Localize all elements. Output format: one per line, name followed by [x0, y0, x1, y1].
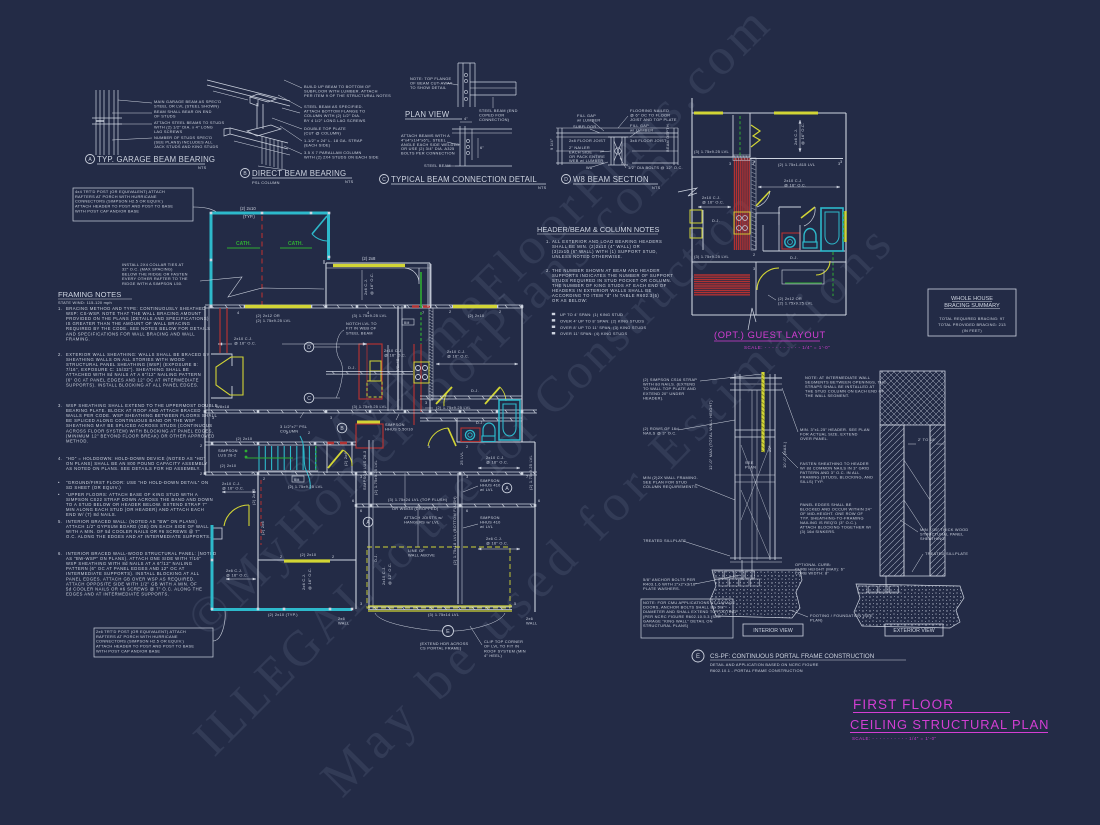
svg-text:W8: W8	[586, 165, 592, 170]
svg-text:(3) 1.75x14 LVL: (3) 1.75x14 LVL	[428, 612, 460, 617]
svg-text:@ 16" O.C.: @ 16" O.C.	[307, 568, 312, 590]
svg-text:INTERIOR BRACED WALL-WOOD STRU: INTERIOR BRACED WALL-WOOD STRUCTURAL PAN…	[66, 551, 218, 596]
svg-text:D.J.: D.J.	[712, 218, 720, 223]
svg-text:•: •	[58, 492, 60, 497]
svg-text:SCALE: - - - - - - - - - - 1/4: SCALE: - - - - - - - - - - 1/4" = 1'-0"	[744, 345, 830, 350]
svg-text:OR W6x34 (DROPPED): OR W6x34 (DROPPED)	[392, 506, 439, 511]
svg-text:D: D	[564, 177, 568, 183]
svg-text:2x10 C.J. @ 16" O.C.: 2x10 C.J. @ 16" O.C.	[222, 481, 244, 491]
svg-text:6: 6	[360, 508, 362, 513]
svg-text:D.J.: D.J.	[373, 554, 378, 562]
svg-text:DOUBLE TOP PLATE (CUT @ COLUMN: DOUBLE TOP PLATE (CUT @ COLUMN)	[304, 126, 347, 136]
svg-text:1/2" DIA BOLTS @ 12" O.C.: 1/2" DIA BOLTS @ 12" O.C.	[628, 165, 683, 170]
svg-text:2: 2	[263, 476, 265, 481]
svg-text:D: D	[307, 345, 311, 351]
svg-text:DETAIL AND APPLICATION BASED O: DETAIL AND APPLICATION BASED ON NCRC FIG…	[710, 662, 819, 667]
svg-text:TOTAL PROVIDED BRACING: 213: TOTAL PROVIDED BRACING: 213	[938, 322, 1006, 327]
svg-text:3x8 FLOOR JOIST: 3x8 FLOOR JOIST	[630, 138, 667, 143]
svg-text:3: 3	[729, 161, 731, 166]
svg-text:(2) 1.75x1.815 LVL: (2) 1.75x1.815 LVL	[778, 162, 816, 167]
svg-text:(2) 1.75x9.25 LVL: (2) 1.75x9.25 LVL	[436, 405, 471, 410]
svg-text:2: 2	[466, 444, 468, 449]
svg-text:"HD" = HOLDDOWN: HOLD-DOWN DEV: "HD" = HOLDDOWN: HOLD-DOWN DEVICE (NOTED…	[66, 456, 209, 471]
svg-text:(2) 2x10 (TYP.): (2) 2x10 (TYP.)	[268, 612, 298, 617]
svg-text:C: C	[382, 177, 386, 183]
svg-text:FLOORING NAILED @ 6" OC TO FLO: FLOORING NAILED @ 6" OC TO FLOOR JOIST A…	[630, 108, 677, 122]
svg-text:•: •	[58, 480, 60, 485]
svg-text:2x10 C.J. @ 16" O.C.: 2x10 C.J. @ 16" O.C.	[486, 455, 508, 465]
svg-text:2: 2	[286, 430, 288, 435]
svg-text:EXTERIOR VIEW: EXTERIOR VIEW	[893, 628, 934, 634]
svg-text:STEEL BEAM: STEEL BEAM	[424, 163, 451, 168]
svg-text:(2) 2x10: (2) 2x10	[251, 488, 256, 505]
svg-text:SIMPSON LUS 26-3: SIMPSON LUS 26-3	[362, 451, 367, 490]
svg-text:2: 2	[280, 554, 282, 559]
svg-text:PLAN VIEW: PLAN VIEW	[405, 110, 450, 119]
svg-text:(2) 2x6: (2) 2x6	[260, 521, 265, 535]
svg-text:2: 2	[753, 252, 755, 257]
svg-text:3: 3	[753, 266, 755, 271]
svg-text:WHOLE HOUSE: WHOLE HOUSE	[951, 296, 993, 302]
svg-text:7: 7	[422, 310, 424, 315]
svg-text:3: 3	[840, 159, 842, 164]
svg-text:NUMBER OF STUDS SPEC'D (SEE PL: NUMBER OF STUDS SPEC'D (SEE PLANS) INCLU…	[154, 135, 219, 149]
svg-text:2: 2	[308, 430, 310, 435]
svg-text:W8x48: W8x48	[395, 359, 400, 372]
svg-text:3: 3	[425, 400, 427, 405]
svg-text:3: 3	[330, 415, 332, 420]
svg-text:6: 6	[352, 498, 354, 503]
svg-text:(IN FEET): (IN FEET)	[962, 328, 982, 333]
svg-text:(2) ROWS OF 16d NAILS @ 3" O.C: (2) ROWS OF 16d NAILS @ 3" O.C.	[643, 426, 680, 436]
svg-text:4.: 4.	[58, 456, 62, 461]
svg-text:E: E	[446, 629, 450, 635]
svg-text:(3) 1.75x9.25 LVL: (3) 1.75x9.25 LVL	[352, 313, 387, 318]
svg-text:R602.10.1 - PORTAL FRAME CONST: R602.10.1 - PORTAL FRAME CONSTRUCTION	[710, 668, 803, 673]
svg-text:FRAMING NOTES: FRAMING NOTES	[58, 290, 121, 299]
svg-text:C: C	[307, 396, 311, 402]
svg-text:D.J.: D.J.	[348, 365, 356, 370]
svg-text:THE NUMBER SHOWN AT BEAM AND H: THE NUMBER SHOWN AT BEAM AND HEADER SUPP…	[552, 268, 675, 303]
svg-text:(3) 1.75x9.25 LVL: (3) 1.75x9.25 LVL	[694, 149, 729, 154]
svg-text:2x10 C.J. @ 16" O.C.: 2x10 C.J. @ 16" O.C.	[234, 336, 256, 346]
svg-text:2x10 C.J. @ 16" O.C.: 2x10 C.J. @ 16" O.C.	[702, 195, 724, 205]
svg-text:(2) 1.75x9.25 LVL: (2) 1.75x9.25 LVL	[528, 455, 533, 490]
svg-text:2' TO 18': 2' TO 18'	[918, 437, 936, 442]
svg-text:(OPT.) GUEST LAYOUT: (OPT.) GUEST LAYOUT	[714, 330, 826, 340]
svg-text:W8 BEAM SECTION: W8 BEAM SECTION	[573, 175, 649, 184]
svg-text:9 1/4": 9 1/4"	[549, 138, 554, 150]
svg-text:6: 6	[538, 498, 540, 503]
svg-text:INTERIOR BRACED WALL: (NOTED A: INTERIOR BRACED WALL: (NOTED AS "BW" ON …	[66, 519, 211, 539]
svg-text:3.: 3.	[58, 403, 62, 408]
svg-text:2x10 C.J. @ 16" O.C.: 2x10 C.J. @ 16" O.C.	[384, 348, 406, 358]
svg-text:2x6 C.J.: 2x6 C.J.	[301, 574, 306, 590]
svg-text:NTS: NTS	[652, 185, 661, 190]
svg-text:OVER 4' UP TO 8' SPAN: (2) KIN: OVER 4' UP TO 8' SPAN: (2) KING STUDS	[560, 318, 644, 323]
svg-text:2x10 C.J. @ 16" O.C.: 2x10 C.J. @ 16" O.C.	[784, 178, 806, 188]
svg-text:TREATED SILLPLATE: TREATED SILLPLATE	[925, 551, 968, 556]
svg-text:@ 16" O.C.: @ 16" O.C.	[800, 123, 805, 145]
svg-text:D.J.: D.J.	[790, 255, 798, 260]
svg-text:FIRST FLOOR: FIRST FLOOR	[853, 697, 954, 712]
svg-text:OVER 8' UP TO 11' SPAN: (3) KI: OVER 8' UP TO 11' SPAN: (3) KING STUDS	[560, 325, 646, 330]
svg-text:(2) 2x10: (2) 2x10	[236, 436, 253, 441]
svg-text:TREATED SILLPLATE: TREATED SILLPLATE	[643, 538, 686, 543]
svg-text:@ 16" O.C.: @ 16" O.C.	[369, 273, 374, 295]
svg-text:2x10 C.J. @ 16" O.C.: 2x10 C.J. @ 16" O.C.	[447, 349, 469, 359]
svg-text:NTS: NTS	[345, 179, 354, 184]
svg-text:HEADER/BEAM & COLUMN NOTES: HEADER/BEAM & COLUMN NOTES	[537, 225, 659, 234]
svg-text:W8x18: W8x18	[216, 404, 229, 409]
svg-text:FILL GAP w/ LUMBER: FILL GAP w/ LUMBER	[630, 123, 653, 132]
svg-text:2.: 2.	[546, 268, 550, 273]
svg-text:TYP. GARAGE BEAM BEARING: TYP. GARAGE BEAM BEARING	[97, 155, 215, 164]
svg-text:CATH.: CATH.	[236, 241, 252, 247]
svg-text:MAIN GARAGE BEAM AS SPEC'D STE: MAIN GARAGE BEAM AS SPEC'D STEEL OR LVL …	[154, 99, 223, 109]
svg-text:NTS: NTS	[198, 165, 207, 170]
svg-text:3: 3	[753, 159, 755, 164]
svg-text:D.J.: D.J.	[476, 420, 484, 425]
svg-text:BM: BM	[404, 321, 410, 325]
svg-text:ATTACH JOISTS w/ HANGERS w/ LV: ATTACH JOISTS w/ HANGERS w/ LVL	[404, 515, 444, 525]
svg-text:@ 12" O.C.: @ 12" O.C.	[387, 563, 392, 585]
svg-text:2: 2	[449, 309, 451, 314]
svg-text:(2) 1.75x9.25 LVL: (2) 1.75x9.25 LVL	[288, 484, 323, 489]
svg-text:E: E	[696, 654, 700, 660]
svg-text:SCALE: - - - - - - - - - - 1/: SCALE: - - - - - - - - - - 1/4" = 1'-0"	[852, 736, 937, 741]
svg-text:NTS: NTS	[538, 185, 547, 190]
svg-text:6: 6	[466, 508, 468, 513]
svg-text:CATH.: CATH.	[288, 241, 304, 247]
svg-text:UP TO 4' SPAN: (1) KING STUD: UP TO 4' SPAN: (1) KING STUD	[560, 312, 623, 317]
svg-text:TYPICAL BEAM CONNECTION DETAIL: TYPICAL BEAM CONNECTION DETAIL	[391, 175, 537, 184]
svg-text:1.: 1.	[58, 306, 62, 311]
svg-text:BRACING METHOD AND TYPE: CONTI: BRACING METHOD AND TYPE: CONTINUOUSLY SH…	[66, 306, 212, 341]
svg-text:12'-0" MAX (TOTAL WALL HEIGHT): 12'-0" MAX (TOTAL WALL HEIGHT)	[708, 400, 713, 470]
svg-text:(2) 2x10: (2) 2x10	[468, 313, 485, 318]
svg-text:INSTALL 2X4 COLLAR TIES AT 32": INSTALL 2X4 COLLAR TIES AT 32" O.C. (MAX…	[122, 262, 189, 286]
svg-text:(3) 1.75x24 LVL (TOP FLUSH): (3) 1.75x24 LVL (TOP FLUSH)	[388, 497, 448, 502]
svg-text:PSL COLUMN: PSL COLUMN	[252, 180, 280, 185]
svg-text:2x6 C.J.: 2x6 C.J.	[793, 129, 798, 145]
svg-text:CS-PF: CONTINUOUS PORTAL FRAME: CS-PF: CONTINUOUS PORTAL FRAME CONSTRUCT…	[710, 653, 874, 660]
svg-text:(2) 1.75x9.25 LVL: (2) 1.75x9.25 LVL	[373, 460, 378, 495]
svg-text:2: 2	[499, 309, 501, 314]
svg-text:(TYP.): (TYP.)	[243, 214, 255, 219]
svg-text:BEAM DEPTH: BEAM DEPTH	[665, 124, 670, 152]
svg-text:OVER 11' SPAN: (4) KING STUDS: OVER 11' SPAN: (4) KING STUDS	[560, 331, 627, 336]
svg-text:20": 20"	[767, 445, 772, 452]
svg-text:5: 5	[514, 601, 516, 606]
svg-text:DIRECT BEAM BEARING: DIRECT BEAM BEARING	[252, 169, 346, 178]
svg-text:(2) 2x8: (2) 2x8	[362, 256, 376, 261]
svg-text:(3) 1.75x9.25 LVL: (3) 1.75x9.25 LVL	[352, 404, 387, 409]
svg-text:STEEL BEAM AS SPECIFIED. ATTAC: STEEL BEAM AS SPECIFIED. ATTACH BOTTOM F…	[304, 104, 367, 123]
svg-text:INTERIOR VIEW: INTERIOR VIEW	[753, 628, 793, 634]
svg-text:2: 2	[200, 471, 202, 476]
svg-text:2x6 C.J.: 2x6 C.J.	[363, 279, 368, 295]
svg-text:WSP SHEATHING SHALL EXTEND TO: WSP SHEATHING SHALL EXTEND TO THE UPPERM…	[66, 403, 220, 443]
svg-text:25 LVL: 25 LVL	[459, 451, 464, 465]
svg-text:(2) 2x10: (2) 2x10	[240, 206, 256, 211]
svg-text:2: 2	[332, 554, 334, 559]
svg-text:2: 2	[200, 443, 202, 448]
svg-text:5.: 5.	[58, 519, 62, 524]
svg-text:(2) 2x10: (2) 2x10	[300, 552, 317, 557]
svg-text:(2) 2x10: (2) 2x10	[220, 463, 237, 468]
svg-text:(3) 1.75x9.25 LVL: (3) 1.75x9.25 LVL	[694, 254, 729, 259]
svg-text:3: 3	[360, 601, 362, 606]
svg-text:2x10 C.J.: 2x10 C.J.	[381, 566, 386, 585]
svg-text:3: 3	[360, 474, 362, 479]
svg-text:(2) 2x6: (2) 2x6	[343, 452, 348, 466]
svg-text:BRACING SUMMARY: BRACING SUMMARY	[944, 303, 1000, 309]
svg-text:SIMPSON LUS 28-2: SIMPSON LUS 28-2	[218, 448, 239, 458]
svg-text:PANEL EDGES SHALL BE BLOCKED A: PANEL EDGES SHALL BE BLOCKED AND OCCUR W…	[800, 502, 873, 534]
svg-text:6.: 6.	[58, 551, 62, 556]
svg-text:SUBFLOOR: SUBFLOOR	[573, 124, 596, 129]
svg-text:3: 3	[212, 415, 214, 420]
svg-text:STATE WIND: 115-120 mph: STATE WIND: 115-120 mph	[58, 300, 112, 305]
svg-text:D.J.: D.J.	[471, 388, 479, 393]
svg-text:SEE PLAN: SEE PLAN	[745, 460, 756, 469]
svg-text:3: 3	[466, 474, 468, 479]
svg-text:TOTAL REQUIRED BRACING: 97: TOTAL REQUIRED BRACING: 97	[939, 316, 1004, 321]
svg-text:2x8 FLOOR JOIST: 2x8 FLOOR JOIST	[569, 138, 606, 143]
svg-text:1.: 1.	[546, 239, 550, 244]
svg-text:2.: 2.	[58, 352, 62, 357]
svg-text:CEILING STRUCTURAL PLAN: CEILING STRUCTURAL PLAN	[850, 717, 1049, 732]
svg-text:4": 4"	[464, 116, 468, 121]
svg-text:(2) 1.75x18 LVL (BOTTOM FLUSH): (2) 1.75x18 LVL (BOTTOM FLUSH)	[452, 496, 457, 565]
svg-text:7: 7	[526, 474, 528, 479]
svg-text:6": 6"	[480, 145, 484, 150]
svg-text:BM: BM	[294, 478, 300, 482]
svg-text:FILL GAP w/ LUMBER: FILL GAP w/ LUMBER	[577, 113, 600, 122]
